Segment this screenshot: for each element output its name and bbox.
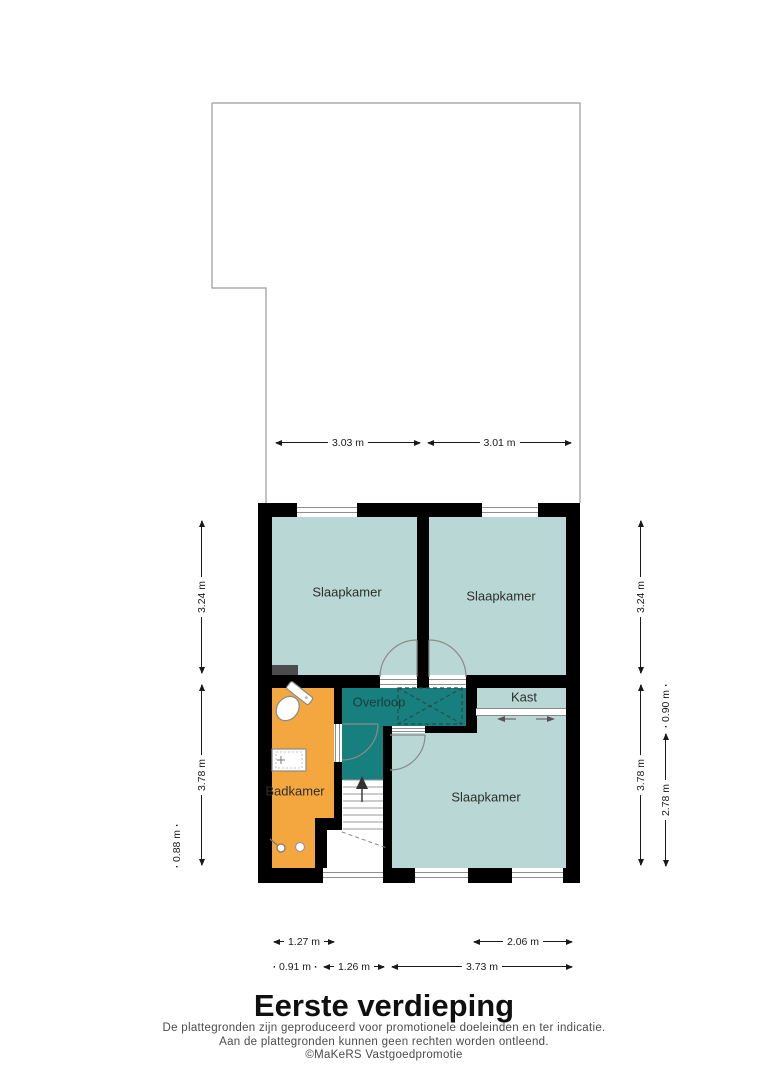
label-bedroom-top-right: Slaapkamer bbox=[466, 589, 535, 604]
duct-block bbox=[272, 665, 298, 675]
dim-bottom-1a: 1.27 m bbox=[273, 936, 335, 948]
closet-sliding-door bbox=[476, 708, 566, 716]
dim-left-small: 0.88 m bbox=[171, 824, 183, 868]
window-bottom-1 bbox=[323, 868, 383, 883]
dim-top-left-label: 3.03 m bbox=[328, 437, 368, 449]
wall-mid-horizontal bbox=[258, 675, 580, 688]
dim-top-right-label: 3.01 m bbox=[479, 437, 519, 449]
dim-bottom-2c-label: 3.73 m bbox=[462, 961, 502, 973]
dim-right-bedroom-label: 2.78 m bbox=[660, 780, 672, 820]
stairs bbox=[343, 780, 383, 829]
door-opening-bedroom-bottom bbox=[392, 726, 425, 733]
dim-left-upper-label: 3.24 m bbox=[196, 577, 208, 617]
wall-center-bedrooms bbox=[417, 503, 429, 677]
dim-right-upper-label: 3.24 m bbox=[635, 577, 647, 617]
dim-right-lower-label: 3.78 m bbox=[635, 755, 647, 795]
dim-left-small-label: 0.88 m bbox=[171, 826, 183, 866]
dim-bottom-2a-label: 0.91 m bbox=[275, 961, 315, 973]
label-bedroom-bottom: Slaapkamer bbox=[451, 790, 520, 805]
door-opening-bedroom-top-right bbox=[429, 675, 466, 688]
window-top-2 bbox=[482, 503, 538, 517]
label-landing: Overloop bbox=[353, 695, 406, 710]
door-opening-bedroom-top-left bbox=[380, 675, 417, 688]
disclaimer-line-2: Aan de plattegronden kunnen geen rechten… bbox=[0, 1036, 768, 1050]
door-opening-bathroom bbox=[334, 724, 342, 762]
dim-left-upper: 3.24 m bbox=[196, 520, 208, 674]
dim-top-left: 3.03 m bbox=[275, 437, 421, 449]
dim-bottom-2b: 1.26 m bbox=[323, 961, 385, 973]
disclaimer: De plattegronden zijn geproduceerd voor … bbox=[0, 1022, 768, 1063]
disclaimer-line-1: De plattegronden zijn geproduceerd voor … bbox=[0, 1022, 768, 1036]
floorplan-canvas: Slaapkamer Slaapkamer Overloop Kast Badk… bbox=[0, 0, 768, 1086]
dim-left-lower-label: 3.78 m bbox=[196, 755, 208, 795]
disclaimer-line-3: ©MaKeRS Vastgoedpromotie bbox=[0, 1049, 768, 1063]
dim-bottom-1b: 2.06 m bbox=[473, 936, 573, 948]
dim-bottom-2b-label: 1.26 m bbox=[334, 961, 374, 973]
room-fill-landing-b bbox=[340, 678, 389, 780]
dim-bottom-1b-label: 2.06 m bbox=[503, 936, 543, 948]
window-bottom-2 bbox=[415, 868, 468, 883]
dim-right-closet: 0.90 m bbox=[660, 684, 672, 728]
dim-bottom-2c: 3.73 m bbox=[391, 961, 573, 973]
dim-left-lower: 3.78 m bbox=[196, 684, 208, 866]
dim-right-upper: 3.24 m bbox=[635, 520, 647, 674]
dim-bottom-2a: 0.91 m bbox=[273, 961, 317, 973]
wall-bathroom-step-h bbox=[315, 818, 342, 830]
dim-right-closet-label: 0.90 m bbox=[660, 686, 672, 726]
wall-left bbox=[258, 503, 272, 883]
dim-right-lower: 3.78 m bbox=[635, 684, 647, 866]
dim-top-right: 3.01 m bbox=[427, 437, 572, 449]
wall-stairs-right bbox=[383, 726, 392, 868]
window-top-1 bbox=[297, 503, 357, 517]
label-bedroom-top-left: Slaapkamer bbox=[312, 585, 381, 600]
dim-right-bedroom: 2.78 m bbox=[660, 733, 672, 867]
label-closet: Kast bbox=[511, 690, 537, 705]
wall-bathroom-step-v bbox=[315, 830, 327, 868]
window-bottom-3 bbox=[512, 868, 563, 883]
wall-landing-right bbox=[466, 675, 477, 733]
wall-right bbox=[566, 503, 580, 883]
page-title: Eerste verdieping bbox=[0, 988, 768, 1024]
dim-bottom-1a-label: 1.27 m bbox=[284, 936, 324, 948]
stairs-cut-line bbox=[342, 832, 387, 848]
label-bathroom: Badkamer bbox=[265, 784, 324, 799]
